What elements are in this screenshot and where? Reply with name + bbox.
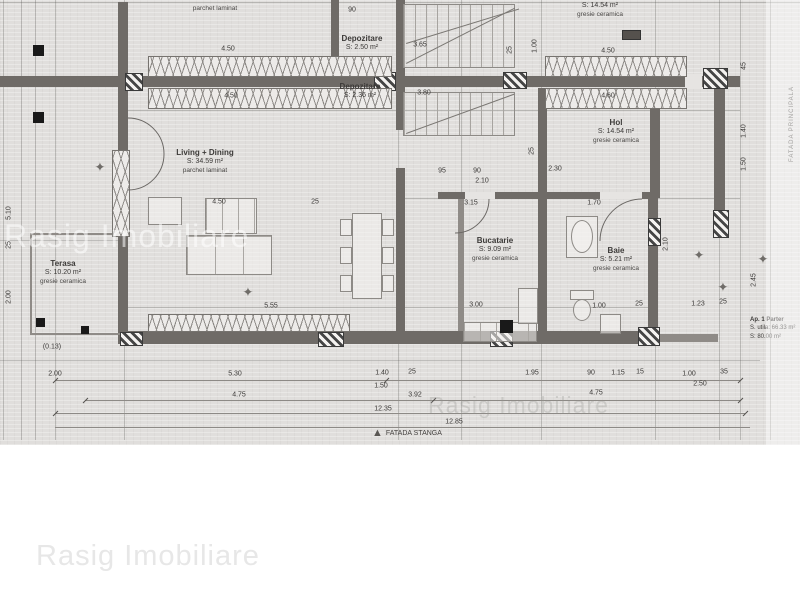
dimension-line [85, 400, 740, 401]
dimension-label: 1.50 [374, 383, 388, 390]
door-opening [465, 192, 495, 199]
dining-table [352, 213, 382, 299]
column [36, 318, 45, 327]
dimension-label: 25 [6, 241, 13, 249]
room-area: S: 9.09 m² [472, 246, 518, 255]
dimension-label: 3.80 [417, 90, 431, 97]
dimension-label: 5.10 [6, 206, 13, 220]
room-name: Depozitare [340, 82, 381, 92]
stair-direction-line [406, 8, 515, 64]
dimension-label: 1.00 [682, 371, 696, 378]
door-arc [600, 199, 644, 243]
chair [340, 247, 352, 264]
column [81, 326, 89, 334]
chair [382, 247, 394, 264]
room-label: S: 14.54 m²gresie ceramica [577, 2, 623, 19]
room-label: BaieS: 5.21 m²gresie ceramica [593, 246, 639, 273]
window-band [545, 88, 687, 109]
hatch-column [713, 210, 729, 238]
dimension-label: (0.13) [43, 344, 61, 351]
room-name: Bucatarie [472, 236, 518, 246]
dimension-line [55, 413, 745, 414]
dimension-label: 25 [635, 301, 643, 308]
hatch-column [318, 332, 344, 347]
page-edge [766, 0, 800, 445]
room-area: S: 2.36 m² [340, 92, 381, 101]
room-finish: gresie ceramica [40, 278, 86, 286]
chair [382, 275, 394, 292]
screenshot: FATADA PRINCIPALA ▲FATADA STANGA Ap. 1 P… [0, 0, 800, 600]
dimension-label: 12.35 [374, 406, 392, 413]
dimension-label: 3.65 [413, 42, 427, 49]
room-label: HolS: 14.54 m²gresie ceramica [593, 118, 639, 145]
toilet-bowl [573, 299, 591, 321]
dimension-label: 1.00 [532, 39, 539, 53]
watermark: Rasig Imobiliare [428, 392, 609, 419]
dimension-label: 4.50 [212, 199, 226, 206]
dimension-label: 2.30 [548, 166, 562, 173]
dimension-label: 2.00 [48, 371, 62, 378]
dimension-label: 95 [438, 168, 446, 175]
dimension-label: 3.15 [464, 200, 478, 207]
room-finish: gresie ceramica [472, 255, 518, 263]
hatch-column [648, 218, 661, 246]
room-name: Terasa [40, 259, 86, 269]
facade-left-label: FATADA STANGA [386, 430, 442, 437]
window-band [148, 56, 392, 77]
stair-flight-lower [403, 92, 515, 136]
room-finish: gresie ceramica [593, 265, 639, 273]
floor-plan-drawing: FATADA PRINCIPALA ▲FATADA STANGA Ap. 1 P… [0, 0, 800, 445]
wall-kitchen-bath [538, 88, 547, 343]
room-name: Baie [593, 246, 639, 256]
room-finish: parchet laminat [176, 167, 234, 175]
chair [340, 219, 352, 236]
dimension-label: 1.40 [375, 370, 389, 377]
dimension-label: 15 [636, 369, 644, 376]
room-area: S: 10.20 m² [40, 269, 86, 278]
kitchen-sink-counter [518, 288, 538, 324]
light-symbol-icon: ✦ [694, 249, 705, 262]
window-tag [622, 30, 641, 40]
column [33, 45, 44, 56]
dimension-label: 1.15 [611, 370, 625, 377]
window-band [545, 56, 687, 77]
room-area: S: 5.21 m² [593, 256, 639, 265]
door-opening [600, 192, 642, 199]
dimension-label: 1.70 [587, 200, 601, 207]
watermark: Rasig Imobiliare [36, 540, 260, 573]
dimension-label: 4.75 [589, 390, 603, 397]
wall-right-exterior [714, 88, 725, 210]
dimension-label: 5.30 [228, 371, 242, 378]
hatch-column [125, 73, 143, 91]
room-area: S: 2.50 m² [342, 44, 383, 53]
room-name: Depozitare [342, 34, 383, 44]
light-symbol-icon: ✦ [95, 161, 106, 174]
dimension-label: 90 [348, 7, 356, 14]
room-label: BucatarieS: 9.09 m²gresie ceramica [472, 236, 518, 263]
wall-bottom-ext [658, 334, 718, 342]
dimension-label: 1.00 [592, 303, 606, 310]
stair-direction-line [406, 94, 514, 134]
dimension-label: 4.50 [601, 48, 615, 55]
hatch-column [703, 68, 728, 89]
washing-machine [600, 314, 621, 334]
door-opening [685, 74, 702, 89]
hatch-column [503, 72, 527, 89]
dimension-label: 2.45 [751, 273, 758, 287]
dimension-label: 1.95 [525, 370, 539, 377]
door-arc [128, 118, 168, 194]
dimension-label: 2.10 [663, 237, 670, 251]
dimension-label: 4.75 [232, 392, 246, 399]
hatch-column [638, 327, 660, 346]
room-finish: parchet laminat [193, 5, 237, 13]
room-area: S: 14.54 m² [577, 2, 623, 11]
dimension-label: 4.50 [224, 93, 238, 100]
dimension-label: 1.23 [691, 301, 705, 308]
hatch-column [120, 332, 143, 346]
room-finish: gresie ceramica [593, 137, 639, 145]
dimension-label: 2.50 [693, 381, 707, 388]
light-symbol-icon: ✦ [718, 281, 729, 294]
dimension-label: 5.55 [264, 303, 278, 310]
dimension-label: 25 [507, 46, 514, 54]
room-label: DepozitareS: 2.50 m² [342, 34, 383, 53]
dimension-label: 3.92 [408, 392, 422, 399]
room-name: Living + Dining [176, 148, 234, 158]
light-symbol-icon: ✦ [243, 286, 254, 299]
room-name: Hol [593, 118, 639, 128]
room-finish: gresie ceramica [577, 11, 623, 19]
wall-center-lower [396, 168, 405, 343]
room-label: parchet laminat [193, 5, 237, 13]
dimension-line [55, 380, 740, 381]
stair-flight-upper [403, 4, 515, 68]
terrace-edge [30, 333, 120, 335]
dimension-label: 25 [529, 147, 536, 155]
chair [382, 219, 394, 236]
chair [340, 275, 352, 292]
light-symbol-icon: ✦ [758, 253, 769, 266]
room-label: DepozitareS: 2.36 m² [340, 82, 381, 101]
dimension-label: 4.50 [221, 46, 235, 53]
room-label: Living + DiningS: 34.59 m²parchet lamina… [176, 148, 234, 175]
dimension-label: 1.40 [741, 124, 748, 138]
dimension-label: 3.00 [469, 302, 483, 309]
window-band [148, 314, 350, 332]
dimension-label: 12.85 [445, 419, 463, 426]
room-area: S: 34.59 m² [176, 158, 234, 167]
dimension-label: 90 [473, 168, 481, 175]
stair-direction-line [406, 9, 519, 44]
dimension-label: 25 [311, 199, 319, 206]
triangle-icon: ▲ [372, 427, 383, 439]
room-area: S: 14.54 m² [593, 128, 639, 137]
dimension-label: 25 [719, 299, 727, 306]
dimension-label: 45 [741, 62, 748, 70]
column [33, 112, 44, 123]
dimension-label: 2.00 [6, 290, 13, 304]
room-label: TerasaS: 10.20 m²gresie ceramica [40, 259, 86, 286]
dimension-label: 2.10 [475, 178, 489, 185]
dimension-label: 25 [408, 369, 416, 376]
facade-left-marker: ▲FATADA STANGA [372, 427, 442, 439]
dimension-label: 35 [720, 369, 728, 376]
grid-line [0, 360, 760, 361]
stove [500, 320, 513, 333]
watermark: Rasig Imobiliare [4, 218, 249, 255]
dimension-label: 90 [587, 370, 595, 377]
dimension-label: 4.60 [601, 93, 615, 100]
wall-bottom [118, 331, 658, 344]
dimension-tick [743, 411, 749, 417]
washbasin [571, 220, 593, 253]
dimension-label: 1.50 [741, 157, 748, 171]
